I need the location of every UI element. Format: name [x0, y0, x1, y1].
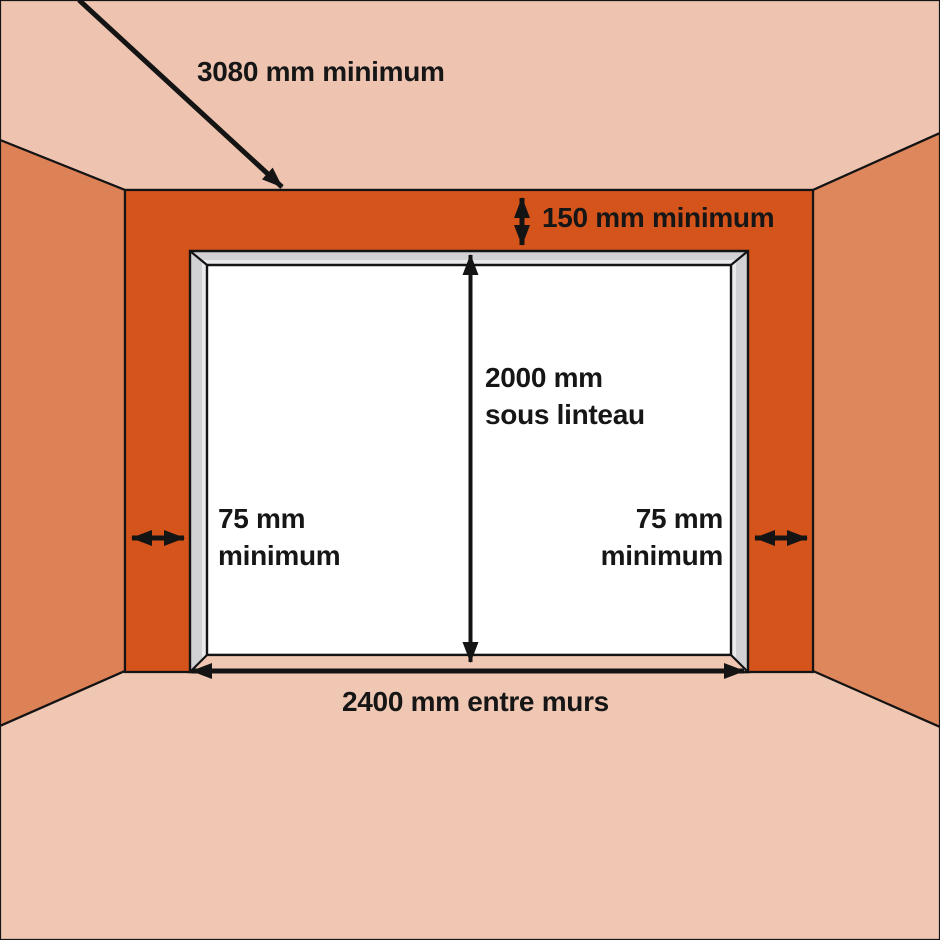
label-overall-width: 3080 mm minimum [197, 55, 445, 89]
garage-door-opening-diagram: 3080 mm minimum 150 mm minimum 2000 mm s… [0, 0, 940, 940]
label-right-margin-caption: minimum [601, 537, 723, 574]
label-left-margin-value: 75 mm [218, 500, 340, 537]
label-left-margin: 75 mm minimum [218, 500, 340, 574]
label-opening-width: 2400 mm entre murs [342, 685, 609, 719]
label-lintel-margin: 150 mm minimum [542, 201, 774, 235]
label-right-margin-value: 75 mm [601, 500, 723, 537]
label-left-margin-caption: minimum [218, 537, 340, 574]
label-opening-height: 2000 mm sous linteau [485, 359, 645, 433]
label-opening-height-caption: sous linteau [485, 396, 645, 433]
ceiling-surface [0, 0, 940, 190]
left-wall-surface [0, 140, 125, 726]
label-opening-height-value: 2000 mm [485, 359, 645, 396]
diagram-canvas [0, 0, 940, 940]
label-right-margin: 75 mm minimum [601, 500, 723, 574]
right-wall-surface [813, 133, 940, 727]
